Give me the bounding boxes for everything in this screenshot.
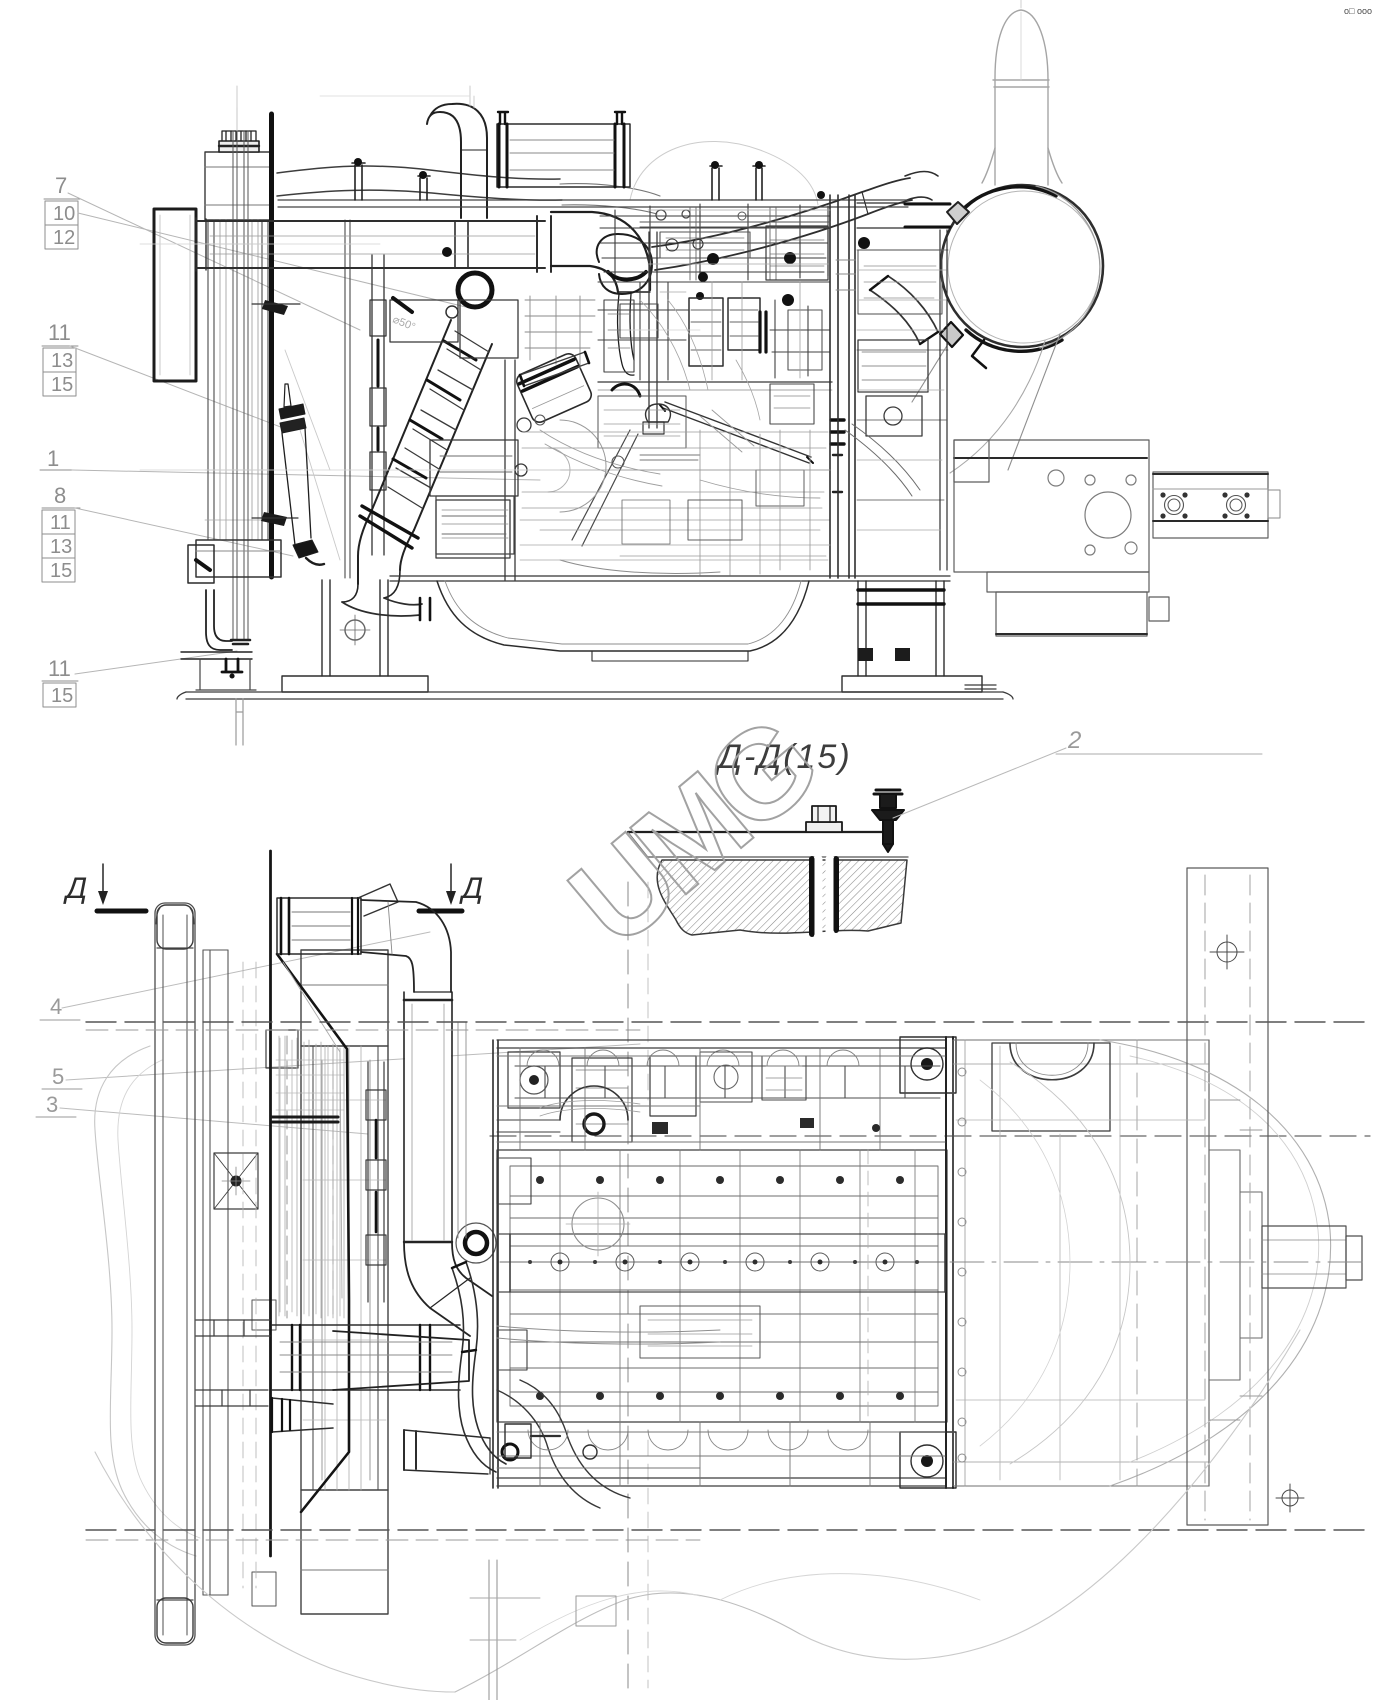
svg-text:5: 5: [52, 1064, 64, 1089]
svg-text:15: 15: [51, 374, 73, 396]
svg-text:Д: Д: [459, 872, 483, 905]
svg-text:7: 7: [55, 173, 67, 198]
svg-text:11: 11: [50, 512, 71, 534]
svg-text:3: 3: [46, 1092, 58, 1117]
svg-text:10: 10: [53, 203, 75, 225]
svg-text:2: 2: [1067, 727, 1081, 754]
svg-text:12: 12: [53, 227, 75, 249]
svg-text:15: 15: [50, 560, 72, 582]
svg-text:13: 13: [51, 350, 73, 372]
svg-text:13: 13: [50, 536, 72, 558]
svg-text:11: 11: [48, 320, 71, 345]
svg-text:4: 4: [50, 994, 62, 1019]
svg-text:Д: Д: [63, 872, 87, 905]
svg-text:о□ ооо: о□ ооо: [1344, 6, 1372, 16]
svg-text:1: 1: [47, 446, 59, 471]
svg-text:11: 11: [48, 656, 71, 681]
svg-text:8: 8: [54, 483, 66, 508]
svg-text:15: 15: [51, 685, 73, 707]
